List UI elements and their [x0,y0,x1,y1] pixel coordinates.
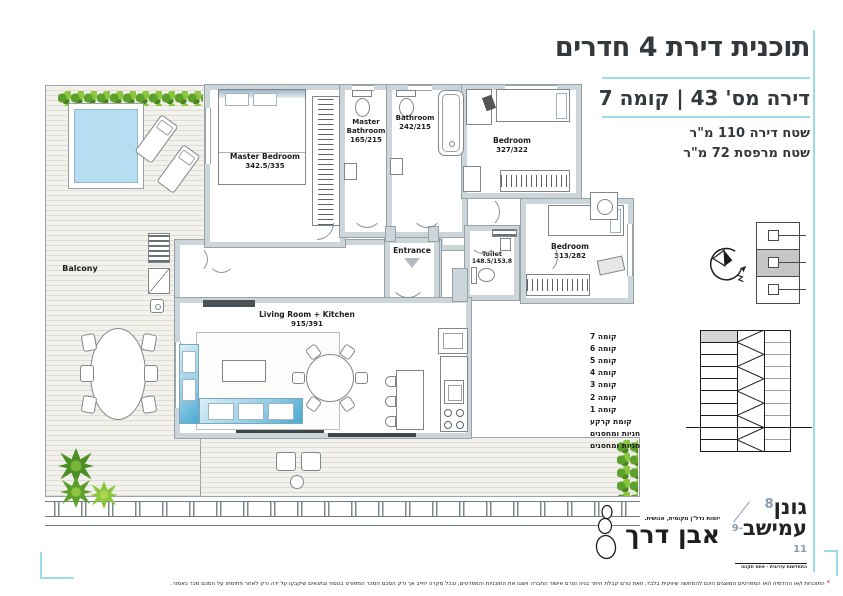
room-dims: 165/215 [338,136,394,145]
door-arc [181,246,208,273]
ground-level-line [686,427,812,428]
deck-chair [301,452,321,471]
building-keyplan [756,222,800,304]
floor-label: קומה 6 [590,342,694,354]
keyplan-cell [757,223,799,250]
pillow [253,93,277,106]
sink [390,158,403,175]
room-label-entrance: Entrance [385,246,439,256]
outdoor-chair [81,395,98,414]
room-name: Master Bathroom [338,118,394,136]
outdoor-chair [144,365,158,382]
room-dims: 148.5/153.8 [463,258,521,266]
room-label: Master Bathroom 165/215 [338,118,394,145]
toilet-tank [352,90,372,97]
right-border-line [813,30,815,572]
disclaimer-bracket-right [836,550,838,576]
floor-label: קומת קרקע [590,415,694,427]
project-logo: גונן8 עמישב9-11 התחדשות עירונית ∙ פתח תק… [735,497,807,570]
floor-labels: קומה 7 קומה 6 קומה 5 קומה 4 קומה 3 קומה … [590,330,694,452]
room-name: Toilet [463,250,521,258]
plant-icon [60,476,92,508]
tv-bench [203,300,255,307]
room-name: Living Room + Kitchen [247,310,367,320]
kitchen-sink [444,380,464,404]
room-label: Master Bedroom 342.5/335 [205,152,325,171]
floor-label: קומה 1 [590,403,694,415]
outdoor-chair [141,395,158,414]
developer-logo: יזמות נדל"ן מקומית, אנושית. אבן דרך [592,504,720,548]
section-left-column [700,330,738,452]
coffee-table [222,360,266,382]
disclaimer-text: * התוכניות ו/או ההדמיה ו/או המפרטים המוצ… [48,579,830,587]
room-label-balcony: Balcony [50,264,110,274]
balcony-deck-bottom [200,437,640,497]
closet [500,170,570,192]
room-label: Bedroom 327/322 [472,136,552,155]
apartment-area: שטח דירה 110 מ"ר [550,124,810,144]
pillow [225,93,249,106]
floor-label: קומה 7 [590,330,694,342]
room-dims: 915/391 [247,320,367,329]
ac-unit [148,233,170,263]
window [627,224,633,276]
floor-label: חניות ומחסנים [590,440,694,452]
compass-icon [702,242,748,288]
door-arc [208,246,235,273]
divider-line [602,116,810,118]
balcony-area: שטח מרפסת 72 מ"ר [550,144,810,164]
title-block: תוכנית דירת 4 חדרים [550,32,810,63]
deck-side-table [290,475,304,489]
section-right-column [764,330,791,452]
room-label: Toilet 148.5/153.8 [463,250,521,266]
door-arc [468,196,500,228]
stove [443,408,465,430]
apartment-subtitle-block: דירה מס' 43 | קומה 7 [550,86,810,110]
sofa [179,344,199,424]
room-name: Master Bedroom [205,152,325,162]
outdoor-chair [81,333,98,352]
outdoor-chair [80,365,94,382]
project-logo-tagline: התחדשות עירונית ∙ פתח תקווה [735,563,807,570]
apartment-number: דירה מס' 43 | קומה 7 [550,86,810,110]
pool [68,103,144,189]
bar-stool [385,396,396,407]
developer-name: אבן דרך [620,522,720,548]
room-label: Bathroom 242/215 [389,114,441,132]
door-arc [412,198,442,228]
fridge [438,328,468,354]
floor-label: קומה 5 [590,354,694,366]
toilet-bowl [355,98,370,117]
room-name: Bathroom [389,114,441,123]
room-dims: 342.5/335 [205,162,325,171]
cabinet [463,166,481,192]
keyplan-cell-highlighted [757,250,799,277]
kitchen-island [396,370,424,430]
vent-grille [492,229,517,237]
closet [526,274,590,296]
sofa [199,398,303,424]
door-arc [390,262,426,298]
floorplan-page: Balcony Master Bedroom 342.5/335 Master … [0,0,843,596]
section-cell-highlighted [701,331,737,343]
pool-water [74,109,138,183]
floor-drain [150,299,164,313]
room-dims: 327/322 [472,146,552,155]
section-stairs-zigzag [737,330,765,452]
balcony-railing [45,501,640,517]
floor-label: קומה 2 [590,391,694,403]
dining-chair [355,372,368,384]
toilet-tank [396,90,416,97]
project-logo-num1: 8 [765,497,774,512]
disclaimer-asterisk: * [827,579,831,587]
wall-stub [428,226,439,242]
washing-machine [590,192,618,220]
floor-label: קומה 4 [590,367,694,379]
floor-label: חניות ומחסנים [590,428,694,440]
project-logo-line2: עמישב [743,516,807,540]
bar-stool [385,376,396,387]
wall-stub [385,226,396,242]
deck-chair [276,452,296,471]
divider-line [602,77,810,79]
stacked-stones-icon [594,504,618,560]
door-arc [524,240,558,274]
door-arc [352,198,382,228]
railing-base-line [45,525,640,526]
room-dims: 242/215 [389,123,441,132]
dining-chair [292,372,305,384]
dining-table [306,354,354,402]
sink [344,163,357,180]
plant-icon [90,481,118,509]
room-label: Living Room + Kitchen 915/391 [247,310,367,329]
utility-box [148,268,170,294]
sliding-door-panel [328,433,416,437]
bathtub [438,90,464,156]
page-title: תוכנית דירת 4 חדרים [550,32,810,63]
room-name: Bedroom [472,136,552,146]
disclaimer-bracket-left [40,552,42,578]
outdoor-chair [141,333,158,352]
wall-stub [452,268,468,302]
outdoor-table [90,328,146,420]
disclaimer-bracket-right-h [824,550,837,552]
bar-stool [385,416,396,427]
toilet-bowl [478,268,495,282]
keyplan-cell [757,277,799,303]
area-block: שטח דירה 110 מ"ר שטח מרפסת 72 מ"ר [550,124,810,164]
toilet-tank [471,267,477,284]
floor-label: קומה 3 [590,379,694,391]
